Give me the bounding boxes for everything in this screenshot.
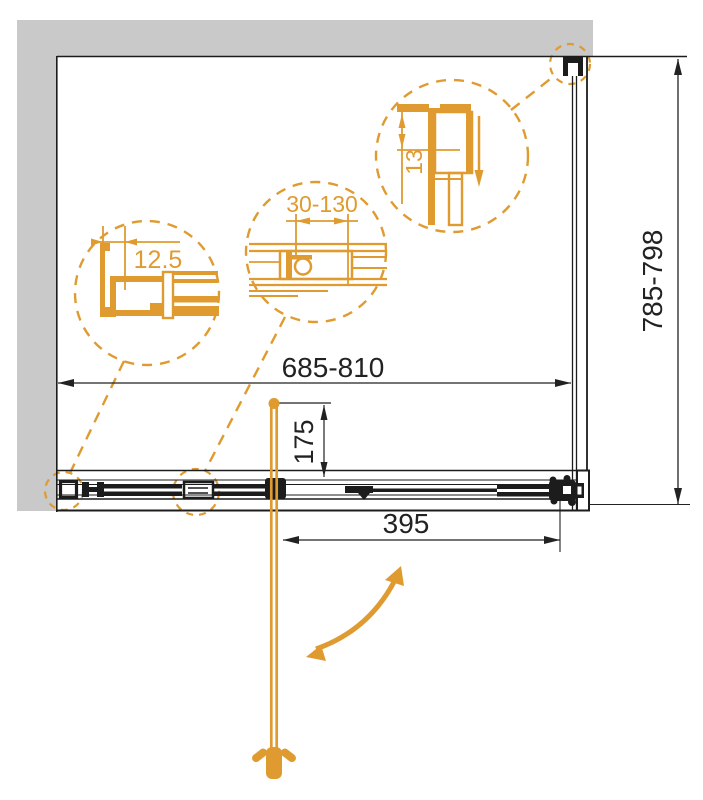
- dimension-overall-height: 785-798: [588, 59, 690, 505]
- detail-corner-profile-drawing: 13: [397, 104, 484, 225]
- detail-adjustment-label: 30-130: [286, 191, 358, 217]
- wall-bracket-profile: [100, 243, 110, 317]
- detail-wall-profile-label: 12.5: [134, 246, 183, 274]
- detail-adjustment-drawing: 30-130: [249, 191, 387, 296]
- track-stopper: [345, 486, 373, 493]
- overall-height-label: 785-798: [637, 230, 668, 333]
- detail-circle-corner-profile: [376, 80, 528, 232]
- technical-drawing-page: 12.5 30-130: [0, 0, 703, 800]
- handle-offset-label: 175: [289, 419, 319, 464]
- door-width-label: 395: [383, 508, 430, 539]
- dimension-overall-width: 685-810: [58, 352, 571, 387]
- leader-line-adjustment: [205, 317, 285, 471]
- overall-width-label: 685-810: [282, 352, 385, 383]
- detail-wall-profile-drawing: 12.5: [91, 226, 219, 318]
- door-swing-arrow: [306, 566, 404, 661]
- dimension-handle-offset: 175: [279, 403, 331, 477]
- door-handle: [250, 747, 297, 779]
- track-bar-left: [104, 484, 182, 489]
- corner-lower-strip: [449, 173, 462, 225]
- dimension-door-width: 395: [283, 500, 560, 552]
- roller-hook-profile: [295, 259, 311, 275]
- leader-line-corner: [511, 76, 554, 110]
- corner-profile-glyph: [563, 57, 583, 76]
- detail-corner-profile-label: 13: [401, 149, 427, 175]
- shower-door-top-view-drawing: 12.5 30-130: [0, 0, 703, 800]
- leader-line-wall-profile: [70, 361, 124, 473]
- detail2-dim-lines: [286, 214, 358, 284]
- slide-direction-arrow: [475, 116, 484, 187]
- glass-edge-profile: [163, 272, 173, 318]
